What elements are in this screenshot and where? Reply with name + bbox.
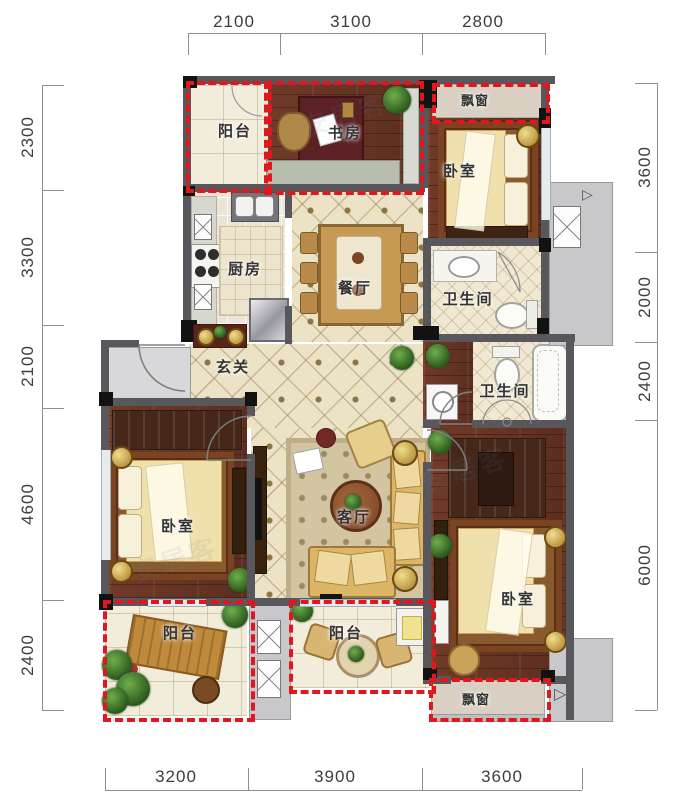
dashed-outline-balcony-bm (289, 600, 436, 694)
dashed-outline-bay-top (432, 83, 550, 124)
window-bedroom-left (101, 450, 111, 560)
room-label-bath-upper: 卫生间 (432, 288, 504, 309)
dimension-label: 2300 (18, 107, 38, 167)
ceiling-medallion (516, 124, 540, 148)
sofa-cushion (350, 550, 388, 586)
plant (428, 534, 452, 558)
side-table (392, 566, 418, 592)
plant (428, 430, 452, 454)
wall-bedroom-left-right-b (247, 454, 255, 606)
burner (195, 249, 206, 260)
plant (426, 344, 450, 368)
ruler-tick (635, 342, 657, 343)
dresser (434, 520, 448, 600)
floor-plan: 2100 3100 2800 2300 3300 2100 4600 2400 … (0, 0, 679, 811)
wall-right-lower (566, 334, 574, 720)
dining-chair (400, 292, 418, 314)
wall-bedroomtr-bottom (423, 238, 547, 246)
sofa-cushion (393, 491, 422, 525)
ruler-tick (635, 252, 657, 253)
dimension-label: 2800 (443, 12, 523, 32)
ruler-tick (42, 85, 64, 86)
dimension-label: 3300 (18, 227, 38, 287)
pillow (504, 182, 528, 226)
vent-triangle-icon: ▷ (582, 186, 593, 203)
ruler-tick (42, 325, 64, 326)
sofa-cushion (314, 550, 352, 586)
ruler-tick (422, 768, 423, 790)
fridge (249, 298, 289, 342)
dining-chair (300, 232, 318, 254)
toilet-tank (492, 346, 520, 358)
shaft-x-icon (257, 620, 281, 654)
plant (390, 346, 414, 370)
ruler-tick (42, 190, 64, 191)
room-label-bedroom-left: 卧室 (142, 515, 214, 536)
pillow (118, 514, 142, 558)
column (413, 326, 439, 340)
pillow (118, 466, 142, 510)
ruler-tick (248, 768, 249, 790)
ruler-tick (42, 600, 64, 601)
ruler-tick (188, 33, 189, 55)
wall-mid-horizontal (423, 334, 575, 342)
ceiling-medallion (110, 446, 133, 469)
vent-triangle-icon: ▷ (554, 684, 566, 704)
outside-niche-left (101, 347, 191, 400)
column (99, 392, 113, 406)
sink-bowl (235, 196, 254, 217)
dining-chair (300, 262, 318, 284)
right-ruler-line (657, 83, 658, 710)
stool (448, 644, 480, 676)
ceiling-medallion (544, 526, 567, 549)
cabinet-x-mark (194, 214, 212, 240)
burner (195, 266, 206, 277)
shaft-x-icon (257, 660, 281, 698)
dimension-label: 3600 (462, 767, 542, 787)
column (539, 238, 551, 252)
ruler-tick (635, 710, 657, 711)
wardrobe-niche (478, 452, 514, 506)
tv (255, 478, 262, 540)
cabinet-white (434, 600, 449, 644)
table-setting (336, 236, 382, 310)
ruler-tick (42, 408, 64, 409)
wall-bathlow-bottom-a (423, 420, 440, 428)
window-bedroom-tr (541, 128, 551, 220)
top-ruler-line (188, 33, 545, 34)
dimension-label: 3100 (311, 12, 391, 32)
ruler-tick (635, 83, 657, 84)
console-bowl (197, 328, 215, 346)
room-label-bedroom-tr: 卧室 (424, 160, 496, 181)
wall-bathlow-bottom-b (472, 420, 574, 428)
console-plant (214, 326, 226, 338)
dimension-label: 3900 (295, 767, 375, 787)
room-label-entry: 玄关 (197, 356, 269, 377)
ruler-tick (422, 33, 423, 55)
room-label-living: 客厅 (318, 506, 390, 527)
side-table (392, 440, 418, 466)
dining-chair (400, 262, 418, 284)
ruler-tick (42, 710, 64, 711)
dining-chair (300, 292, 318, 314)
ruler-tick (635, 420, 657, 421)
bottom-ruler-line (105, 790, 582, 791)
room-label-bedroom-br: 卧室 (482, 588, 554, 609)
washer-drum (432, 391, 454, 413)
dimension-label: 3600 (635, 137, 655, 197)
wardrobe (112, 410, 242, 450)
ruler-tick (545, 33, 546, 55)
dimension-label: 2100 (194, 12, 274, 32)
dashed-outline-study (264, 81, 424, 195)
ceiling-medallion (544, 630, 567, 653)
wall-kitchen-b (285, 306, 292, 344)
room-label-bath-lower: 卫生间 (469, 380, 541, 401)
ruler-tick (280, 33, 281, 55)
dimension-label: 2100 (18, 336, 38, 396)
ruler-tick (105, 768, 106, 790)
shaft-x-icon (553, 206, 581, 248)
wall-bedroom-left-top (101, 398, 251, 406)
dimension-label: 2400 (635, 351, 655, 411)
dresser (232, 468, 246, 554)
wall-bathup-left (423, 246, 431, 338)
column (537, 318, 549, 334)
pouf (316, 428, 336, 448)
left-ruler-line (42, 85, 43, 710)
dashed-outline-balcony-bl (103, 600, 255, 722)
dining-chair (400, 232, 418, 254)
ruler-tick (582, 768, 583, 790)
column (245, 392, 257, 406)
dashed-outline-balcony-tl (186, 81, 272, 193)
dimension-label: 3200 (136, 767, 216, 787)
ceiling-medallion (110, 560, 133, 583)
room-label-dining: 餐厅 (319, 277, 391, 298)
sofa-cushion (393, 527, 421, 561)
console-bowl (227, 328, 245, 346)
basin (448, 256, 480, 278)
dimension-label: 6000 (635, 535, 655, 595)
cabinet-x-mark (194, 284, 212, 310)
dashed-outline-bay-bottom (429, 678, 551, 722)
dimension-label: 2000 (635, 267, 655, 327)
room-label-kitchen: 厨房 (209, 258, 281, 279)
dimension-label: 2400 (18, 625, 38, 685)
dimension-label: 4600 (18, 474, 38, 534)
sink-bowl (255, 196, 274, 217)
centerpiece (352, 252, 364, 264)
